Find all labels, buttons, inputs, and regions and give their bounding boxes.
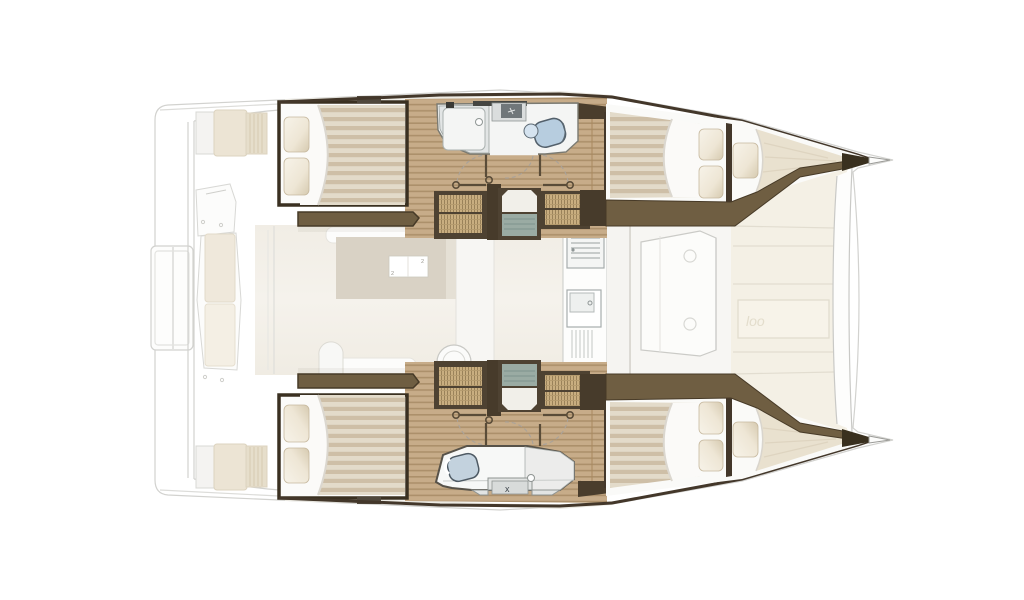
- svg-text:loo: loo: [746, 313, 765, 329]
- svg-text:x: x: [505, 484, 510, 494]
- svg-text:2: 2: [391, 271, 394, 277]
- svg-text:2: 2: [421, 259, 424, 265]
